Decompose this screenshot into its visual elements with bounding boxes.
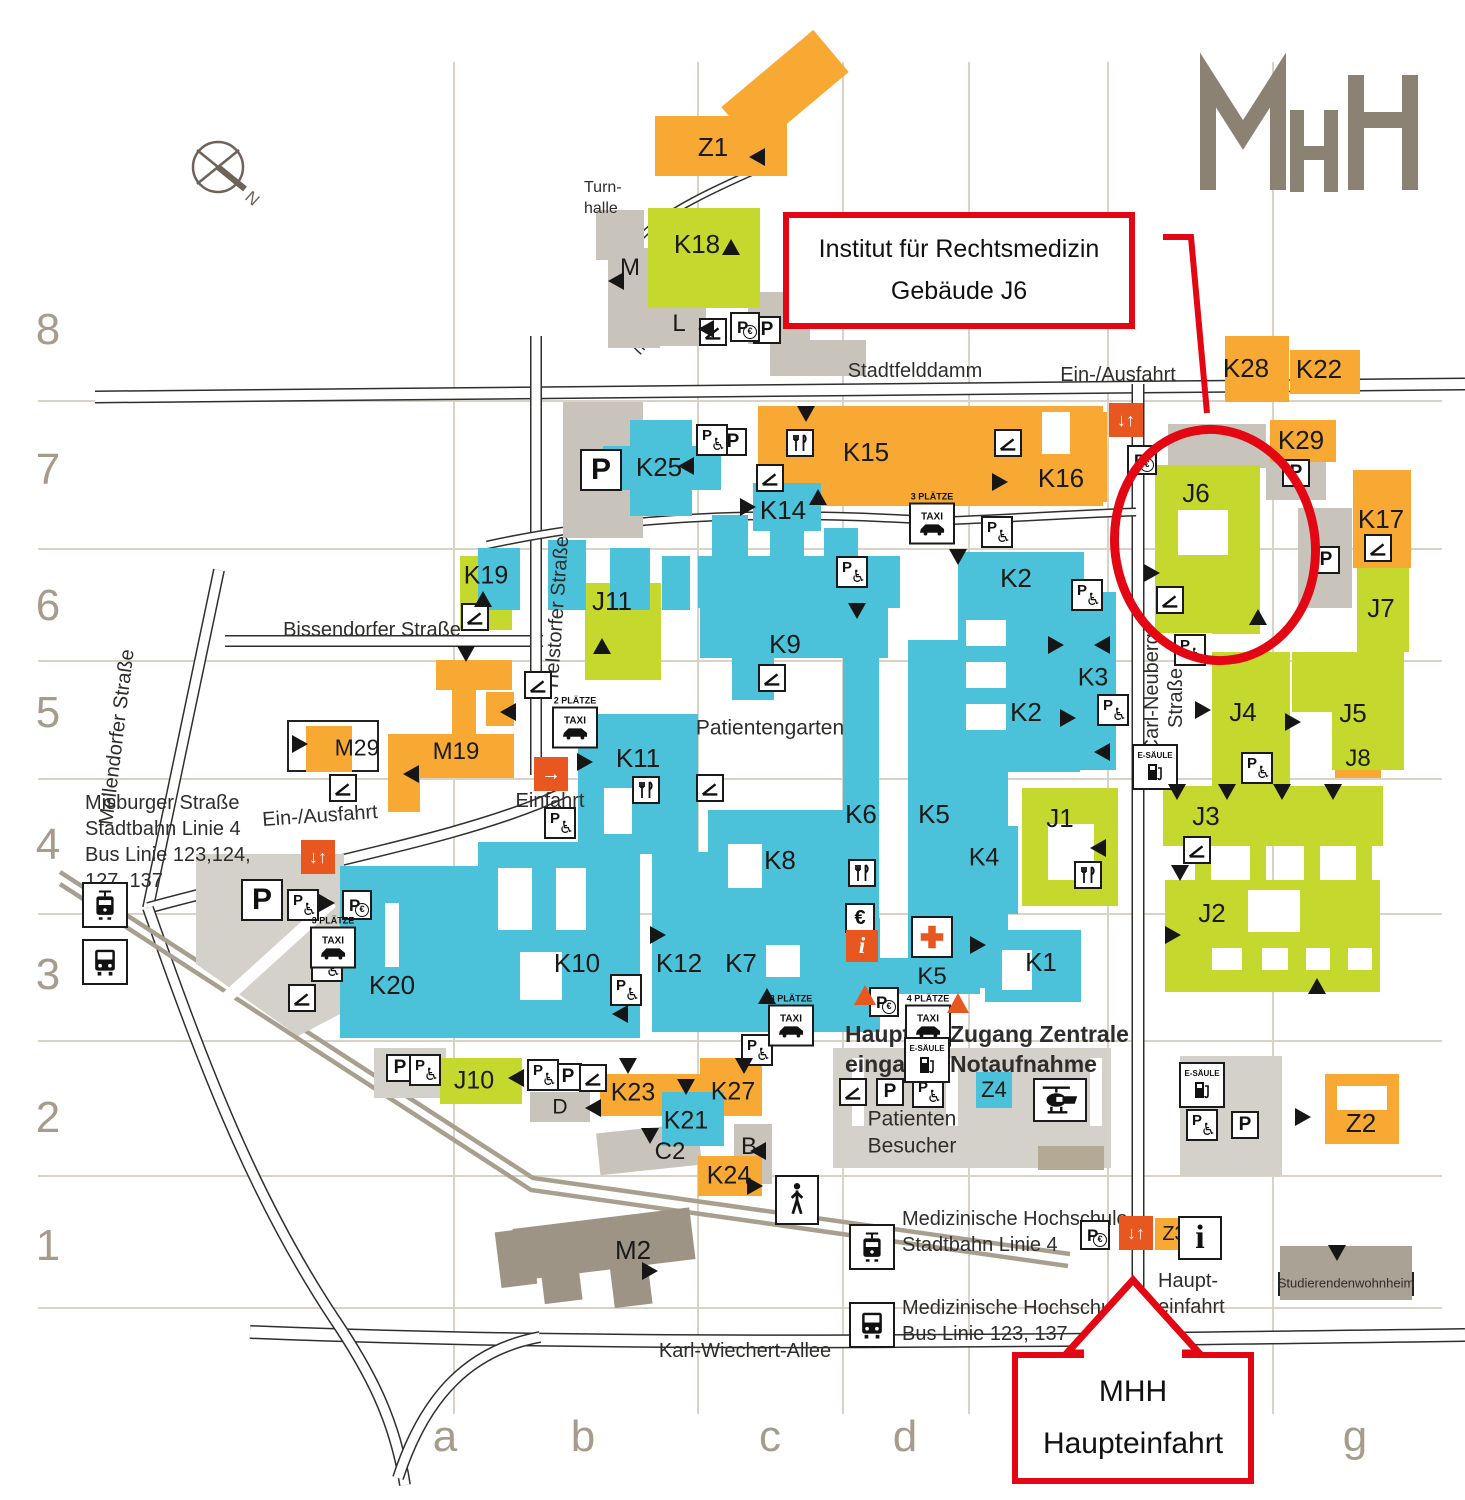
barrier-icon: [329, 774, 357, 802]
entrance-arrow-icon: [797, 406, 815, 422]
grid-col-label: c: [759, 1412, 781, 1462]
barrier-icon: [839, 1078, 867, 1106]
information-icon: i: [846, 930, 878, 962]
building-label: K21: [664, 1109, 708, 1134]
grid-line: [38, 1307, 1442, 1309]
entrance-arrow-icon: [1060, 709, 1076, 727]
building-block: [1304, 846, 1320, 882]
entrance-arrow-icon: [1048, 636, 1064, 654]
entrance-arrow-icon: [1249, 609, 1267, 625]
building-block: [1250, 846, 1266, 882]
bus-icon: [849, 1302, 895, 1348]
street-label: Ein-/Ausfahrt: [261, 799, 378, 833]
building-block: [966, 704, 1006, 730]
entrance-arrow-icon: [1094, 743, 1110, 761]
parking-paid-icon: P€: [1080, 1220, 1110, 1250]
entrance-arrow-icon: [949, 549, 967, 565]
entrance-arrow-icon: [585, 1099, 601, 1117]
parking-disabled-icon: P♿: [409, 1054, 441, 1086]
building-block: [604, 788, 632, 834]
grid-row-label: 3: [36, 950, 60, 1000]
building-label: Z2: [1346, 1110, 1376, 1136]
restaurant-icon: [632, 776, 660, 804]
parking-paid-icon: P€: [730, 312, 760, 342]
annotation-line: Institut für Rechtsmedizin: [819, 229, 1100, 270]
entrance-arrow-icon: [1218, 784, 1236, 800]
barrier-icon: [1156, 586, 1184, 614]
barrier-icon: [288, 984, 316, 1012]
restaurant-icon: [1074, 861, 1102, 889]
building-label: M19: [433, 740, 480, 764]
barrier-icon: [461, 603, 489, 631]
building-label: M29: [335, 737, 380, 760]
entrance-arrow-icon: [809, 489, 827, 505]
entrance-arrow-icon: [1195, 701, 1211, 719]
building-label: Z1: [698, 134, 728, 160]
entrance-arrow-icon: [1273, 784, 1291, 800]
building-label: J1: [1046, 805, 1073, 831]
street-label: Medizinische HochschuleBus Linie 123, 13…: [902, 1295, 1128, 1347]
parking-icon: P: [1312, 546, 1340, 574]
building-block: [966, 620, 1006, 646]
building-label: K29: [1278, 427, 1324, 453]
entrance-arrow-icon: [1328, 1245, 1346, 1261]
entrance-arrow-icon: [612, 1005, 628, 1023]
in-out-icon: ↓↑: [1119, 1216, 1153, 1250]
entrance-arrow-icon: [403, 765, 419, 783]
building-label: M2: [615, 1237, 651, 1263]
building-block: [539, 1256, 582, 1304]
building-block: [452, 688, 476, 738]
entrance-arrow-icon: [1168, 784, 1186, 800]
street-label: Karl-Wiechert-Allee: [659, 1338, 831, 1364]
building-label: K16: [1038, 465, 1084, 491]
entrance-arrow-icon: [593, 638, 611, 654]
entrance-arrow-icon: [750, 1142, 766, 1160]
building-block: [1248, 890, 1300, 932]
building-label: K12: [656, 950, 702, 976]
entrance-arrow-icon: [722, 239, 740, 255]
parking-icon: P: [1282, 459, 1310, 487]
barrier-icon: [1183, 836, 1211, 864]
building-label: K14: [760, 497, 806, 523]
street-label: Straße: [1163, 668, 1189, 728]
parking-disabled-icon: P♿: [1241, 752, 1273, 784]
building-label: J2: [1198, 900, 1225, 926]
annotation-box: Institut für Rechtsmedizin Gebäude J6: [783, 212, 1135, 329]
building-label: J3: [1192, 803, 1219, 829]
annotation-line: Gebäude J6: [891, 271, 1027, 312]
parking-disabled-icon: P♿: [836, 556, 868, 588]
grid-row-label: 2: [36, 1093, 60, 1143]
entrance-arrow-icon: [740, 498, 756, 516]
tram-icon: [849, 1224, 895, 1270]
building-block: [436, 660, 512, 690]
emergency-cross-icon: [911, 916, 953, 958]
parking-disabled-icon: P♿: [1097, 694, 1129, 726]
svg-text:N: N: [241, 187, 263, 209]
restaurant-icon: [786, 429, 814, 457]
entrance-arrow-icon: [970, 936, 986, 954]
building-block: [662, 556, 690, 610]
building-block: [1306, 948, 1330, 970]
entrance-arrow-icon: [474, 591, 492, 607]
grid-row-label: 5: [36, 688, 60, 738]
parking-disabled-icon: P♿: [1071, 579, 1103, 611]
pedestrian-icon: [775, 1175, 819, 1225]
entrance-arrow-icon: [500, 703, 516, 721]
cash-icon: €: [845, 903, 875, 933]
street-label: Studierendenwohnheim: [1278, 1276, 1415, 1293]
building-label: K4: [969, 846, 1000, 871]
building-block: [712, 515, 748, 558]
compass-icon: N: [193, 142, 263, 210]
grid-row-label: 6: [36, 581, 60, 631]
building-block: [498, 868, 532, 930]
building-label: K10: [554, 950, 600, 976]
barrier-icon: [756, 464, 784, 492]
street-label: Patientengarten: [696, 714, 844, 741]
mhh-logo: [1208, 75, 1410, 192]
street-label: PatientenBesucher: [868, 1106, 957, 1161]
street-label: Turn-halle: [584, 178, 622, 220]
entrance-arrow-icon: [1171, 865, 1189, 881]
building-label: K18: [674, 231, 720, 257]
parking-icon: P: [580, 449, 622, 491]
charging-station-icon: E-SÄULE: [1179, 1062, 1225, 1108]
building-label: K2: [1000, 565, 1032, 591]
building-block: [1348, 948, 1372, 970]
building-label: J5: [1339, 700, 1366, 726]
building-label: J4: [1229, 699, 1256, 725]
building-label: K22: [1296, 356, 1342, 382]
building-block: [766, 945, 800, 977]
building-block: [1337, 1086, 1387, 1110]
building-label: C2: [655, 1140, 686, 1164]
entrance-arrow-icon: [678, 457, 694, 475]
building-block: [966, 662, 1006, 688]
building-label: K23: [611, 1081, 655, 1106]
in-out-icon: ↓↑: [1109, 403, 1143, 437]
entrance-arrow-icon: [1090, 839, 1106, 857]
parking-disabled-icon: P♿: [981, 516, 1013, 548]
entrance-arrow-icon: [1165, 926, 1181, 944]
charging-station-icon: E-SÄULE: [904, 1037, 950, 1083]
parking-paid-icon: P€: [1127, 445, 1157, 475]
building-label: K1: [1025, 949, 1057, 975]
street-label: Zugang ZentraleNotaufnahme: [950, 1020, 1129, 1080]
information-icon: i: [1178, 1216, 1222, 1260]
barrier-icon: [994, 429, 1022, 457]
building-label: K15: [843, 439, 889, 465]
grid-col-label: a: [433, 1412, 457, 1462]
building-label: K2: [1010, 699, 1042, 725]
construction-cone-icon: [947, 993, 969, 1013]
entrance-arrow-icon: [641, 1128, 659, 1144]
building-block: [1038, 1146, 1104, 1170]
campus-map: Institut für Rechtsmedizin Gebäude J6 MH…: [0, 0, 1465, 1500]
entrance-arrow-icon: [292, 735, 308, 753]
entrance-arrow-icon: [677, 1079, 695, 1095]
entry-arrow-icon: →: [534, 757, 568, 791]
parking-icon: P: [1231, 1111, 1259, 1139]
barrier-icon: [524, 671, 552, 699]
helipad-icon: [1033, 1078, 1087, 1122]
street-label: Misburger StraßeStadtbahn Linie 4Bus Lin…: [85, 790, 251, 894]
entrance-arrow-icon: [735, 1058, 753, 1074]
grid-col-label: d: [893, 1412, 917, 1462]
building-label: K5: [917, 965, 946, 989]
grid-line: [38, 1040, 1442, 1042]
street-label: Ein-/Ausfahrt: [1060, 362, 1176, 388]
grid-row-label: 4: [36, 820, 60, 870]
building-label: J8: [1345, 747, 1370, 771]
building-label: K6: [845, 801, 877, 827]
entrance-arrow-icon: [992, 473, 1008, 491]
entrance-arrow-icon: [1094, 636, 1110, 654]
building-label: L: [672, 312, 685, 336]
building-block: [1168, 424, 1266, 468]
building-label: K28: [1223, 355, 1269, 381]
parking-disabled-icon: P♿: [696, 424, 728, 456]
building-label: K9: [769, 631, 801, 657]
arrow-shaft: [1084, 1346, 1182, 1360]
parking-disabled-icon: P♿: [527, 1059, 559, 1091]
entrance-arrow-icon: [758, 988, 776, 1004]
entrance-arrow-icon: [749, 148, 765, 166]
building-block: [824, 528, 858, 558]
entrance-arrow-icon: [508, 1069, 524, 1087]
building-block: [385, 903, 399, 967]
building-block: [1212, 948, 1242, 970]
building-label: K5: [918, 801, 950, 827]
parking-disabled-icon: P♿: [610, 974, 642, 1006]
building-block: [1178, 510, 1228, 555]
taxi-icon: 3 PLÄTZETAXI: [310, 916, 356, 969]
parking-disabled-icon: P♿: [1174, 634, 1206, 666]
building-label: D: [552, 1097, 567, 1118]
entrance-arrow-icon: [1144, 564, 1160, 582]
parking-disabled-icon: P♿: [1186, 1109, 1218, 1141]
entrance-arrow-icon: [1308, 978, 1326, 994]
entrance-arrow-icon: [650, 926, 666, 944]
building-block: [1262, 948, 1288, 970]
entrance-arrow-icon: [457, 646, 475, 662]
entrance-arrow-icon: [642, 1262, 658, 1280]
building-label: K27: [711, 1080, 755, 1105]
building-block: [556, 868, 586, 930]
taxi-icon: 2 PLÄTZETAXI: [552, 696, 598, 749]
entrance-arrow-icon: [848, 603, 866, 619]
building-label: J6: [1182, 480, 1209, 506]
barrier-icon: [696, 774, 724, 802]
building-label: K19: [464, 564, 508, 589]
building-label: J7: [1367, 595, 1394, 621]
restaurant-icon: [848, 859, 876, 887]
building-label: K20: [369, 972, 415, 998]
grid-row-label: 7: [36, 445, 60, 495]
grid-row-label: 8: [36, 305, 60, 355]
building-label: K11: [616, 745, 660, 771]
street-label: Haupt-einfahrt: [1158, 1268, 1225, 1320]
tram-icon: [82, 882, 128, 928]
building-block: [1356, 846, 1372, 882]
building-l: [636, 302, 706, 346]
entrance-arrow-icon: [698, 320, 714, 338]
taxi-icon: 3 PLÄTZETAXI: [909, 492, 955, 545]
barrier-icon: [579, 1064, 607, 1092]
main-entrance-line: MHH: [1099, 1366, 1167, 1419]
entrance-arrow-icon: [1324, 784, 1342, 800]
entrance-arrow-icon: [1285, 713, 1301, 731]
entrance-arrow-icon: [747, 1177, 763, 1195]
building-label: K7: [725, 950, 757, 976]
entrance-arrow-icon: [1295, 1108, 1311, 1126]
street-label: Bissendorfer Straße: [283, 617, 461, 643]
street-label: Stadtfelddamm: [848, 358, 983, 384]
barrier-icon: [1364, 534, 1392, 562]
building-block: [728, 844, 762, 888]
barrier-icon: [758, 664, 786, 692]
parking-disabled-icon: P♿: [544, 807, 576, 839]
building-label: K3: [1078, 666, 1109, 691]
grid-col-label: b: [571, 1412, 595, 1462]
street-label: Carl-Neuberg-: [1139, 627, 1165, 754]
building-label: J10: [454, 1069, 494, 1094]
construction-cone-icon: [854, 985, 876, 1005]
entrance-arrow-icon: [577, 753, 593, 771]
entrance-arrow-icon: [608, 272, 624, 290]
grid-col-label: g: [1343, 1412, 1367, 1462]
building-label: K24: [707, 1164, 751, 1189]
building-block: [495, 1228, 538, 1288]
entrance-arrow-icon: [319, 894, 335, 912]
building-label: K17: [1358, 506, 1404, 532]
building-label: K25: [636, 454, 682, 480]
in-out-icon: ↓↑: [301, 840, 335, 874]
building-block: [1042, 412, 1070, 454]
entrance-arrow-icon: [619, 1058, 637, 1074]
building-label: Z4: [981, 1079, 1007, 1101]
main-entrance-line: Haupteinfahrt: [1043, 1418, 1223, 1471]
parking-icon: P: [241, 879, 283, 921]
building-label: J11: [592, 588, 632, 614]
building-label: K8: [764, 847, 796, 873]
street-label: Helstorfer Straße: [539, 535, 576, 689]
bus-icon: [82, 939, 128, 985]
grid-row-label: 1: [36, 1221, 60, 1271]
main-entrance-box: MHH Haupteinfahrt: [1012, 1352, 1254, 1484]
parking-icon: P: [876, 1078, 904, 1106]
